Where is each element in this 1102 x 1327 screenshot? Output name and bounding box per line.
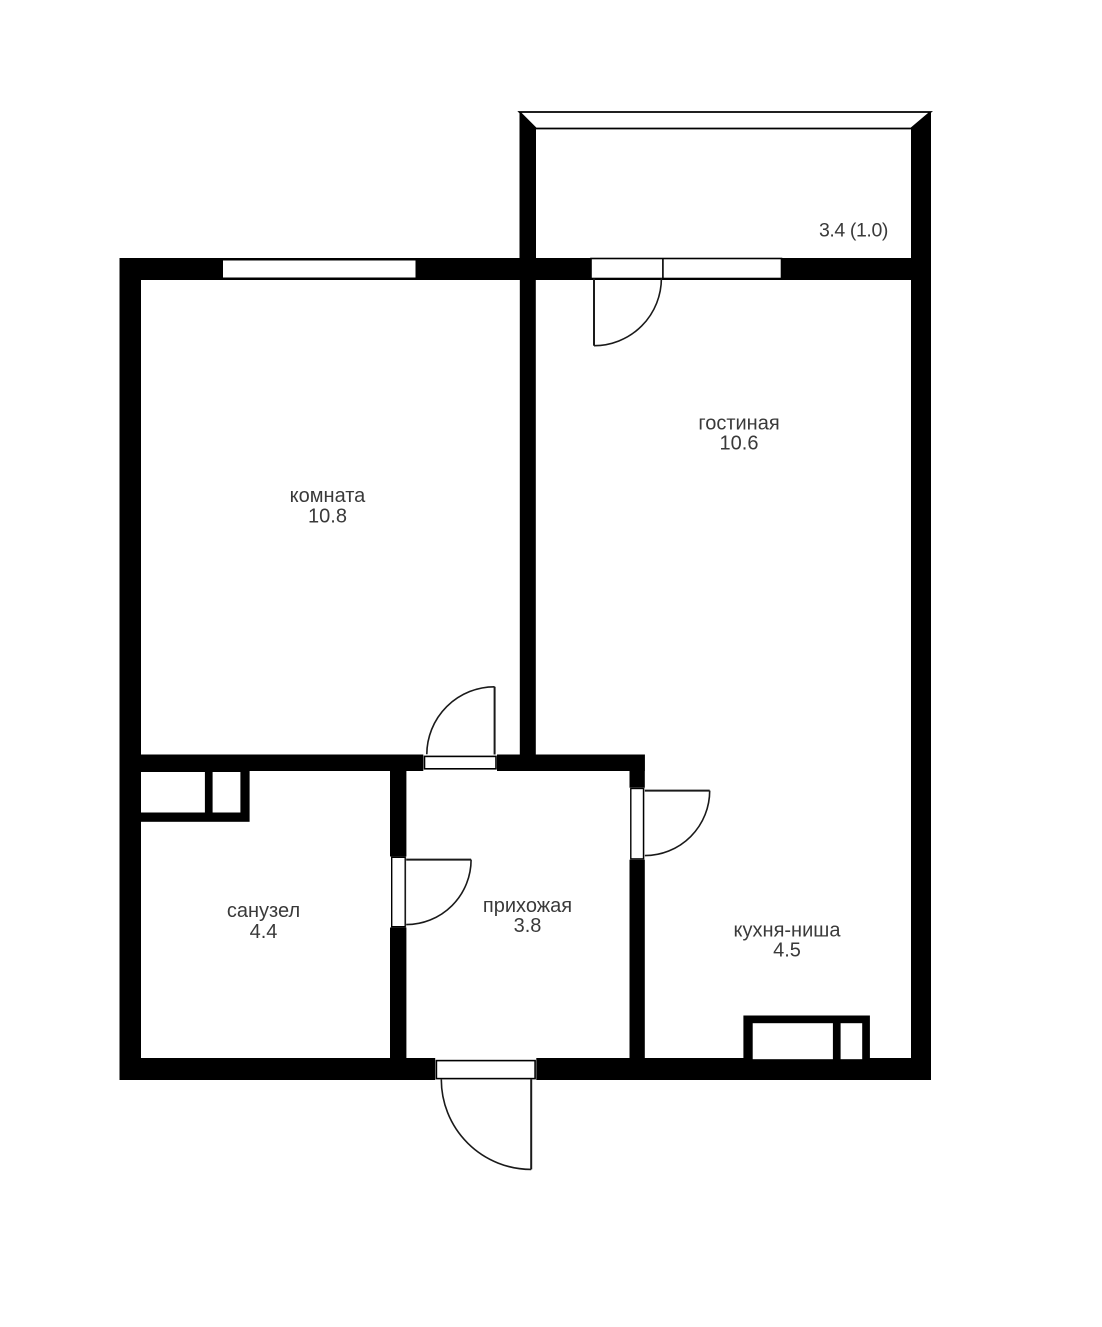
svg-text:кухня-ниша: кухня-ниша: [734, 919, 842, 941]
svg-text:гостиная: гостиная: [698, 412, 779, 434]
svg-text:4.4: 4.4: [250, 921, 278, 943]
svg-text:комната: комната: [290, 485, 367, 507]
svg-text:прихожая: прихожая: [483, 895, 572, 917]
svg-text:3.4 (1.0): 3.4 (1.0): [819, 220, 888, 242]
svg-text:3.8: 3.8: [514, 915, 542, 937]
svg-text:санузел: санузел: [227, 900, 300, 922]
svg-text:4.5: 4.5: [773, 940, 801, 962]
svg-text:10.6: 10.6: [720, 433, 759, 455]
svg-text:10.8: 10.8: [308, 506, 347, 528]
